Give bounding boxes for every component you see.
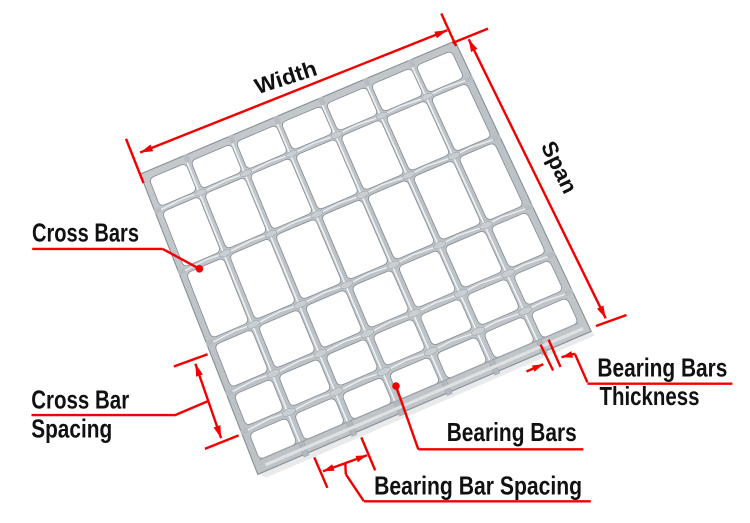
- svg-text:Cross Bars: Cross Bars: [32, 218, 139, 248]
- svg-text:Bearing Bars: Bearing Bars: [447, 417, 577, 447]
- svg-text:Spacing: Spacing: [31, 414, 112, 444]
- svg-text:Thickness: Thickness: [600, 381, 700, 411]
- svg-text:Bearing Bar Spacing: Bearing Bar Spacing: [374, 470, 582, 500]
- svg-text:Cross Bar: Cross Bar: [31, 384, 129, 414]
- svg-text:Bearing Bars: Bearing Bars: [597, 352, 727, 382]
